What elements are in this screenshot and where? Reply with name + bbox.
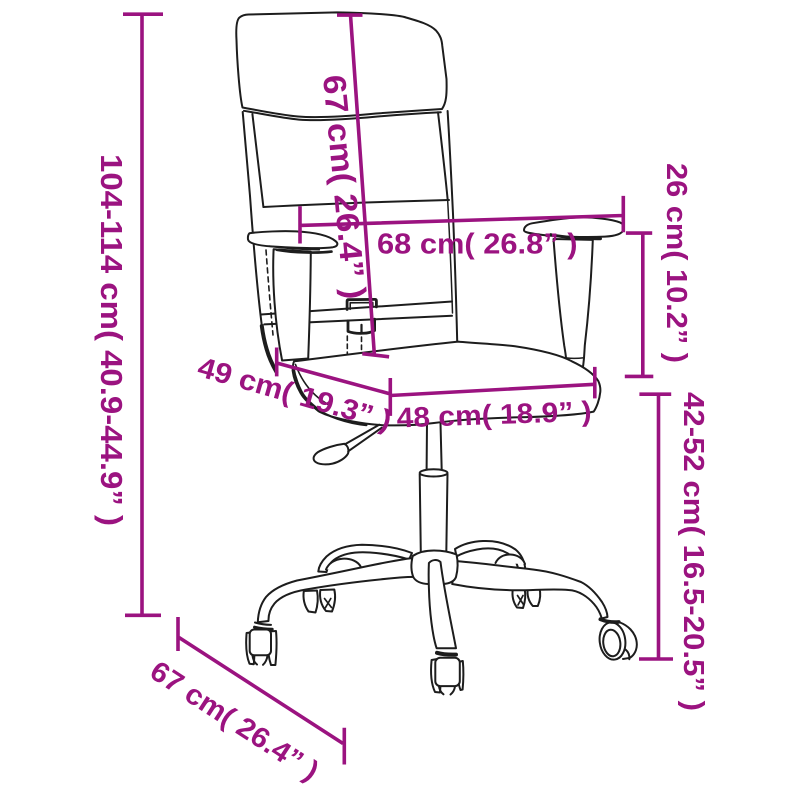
svg-text:68 cm( 26.8” ): 68 cm( 26.8” )	[377, 229, 578, 261]
svg-text:48 cm( 18.9” ): 48 cm( 18.9” )	[396, 395, 592, 434]
svg-text:26 cm( 10.2” ): 26 cm( 10.2” )	[660, 163, 692, 363]
svg-text:42-52 cm( 16.5-20.5” ): 42-52 cm( 16.5-20.5” )	[677, 392, 709, 711]
svg-text:104-114 cm( 40.9-44.9” ): 104-114 cm( 40.9-44.9” )	[94, 154, 128, 526]
